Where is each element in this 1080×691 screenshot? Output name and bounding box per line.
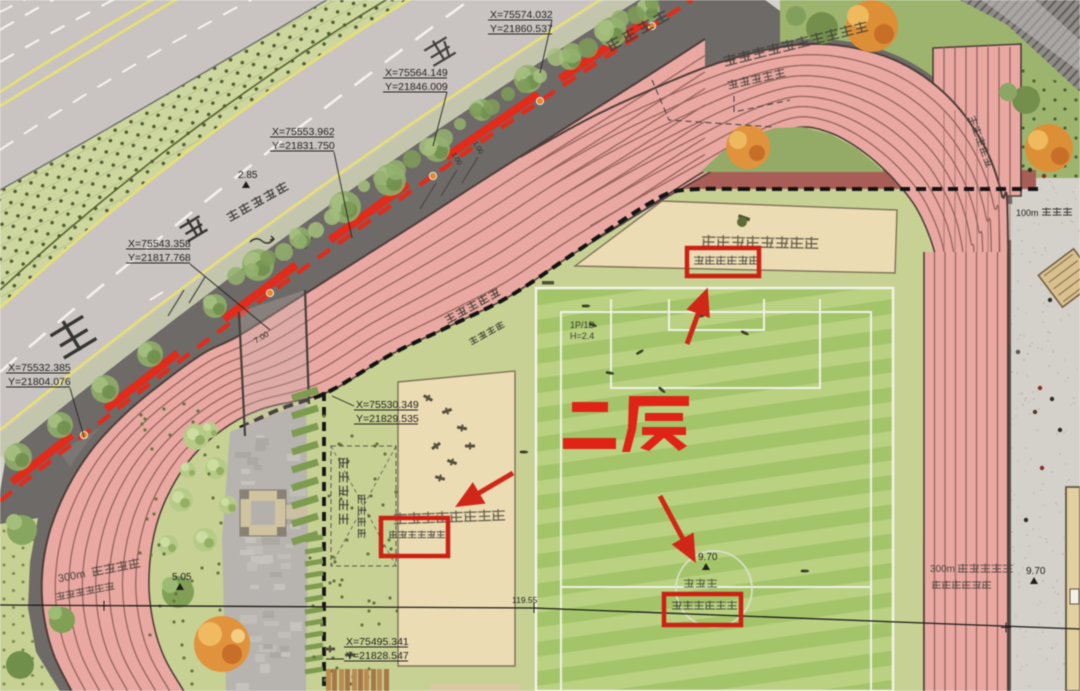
svg-text:X=75543.358: X=75543.358 [128,238,191,250]
svg-text:Y=21817.768: Y=21817.768 [128,252,191,264]
svg-text:1P/1D: 1P/1D [570,320,596,330]
svg-text:Y=21804.076: Y=21804.076 [8,376,71,388]
svg-text:Y=21828.547: Y=21828.547 [346,650,409,662]
svg-text:100m: 100m [1016,208,1039,218]
svg-text:Y=21846.009: Y=21846.009 [385,81,448,93]
svg-text:9.70: 9.70 [698,552,718,563]
svg-text:9.70: 9.70 [1026,566,1046,577]
svg-text:Y=21829.535: Y=21829.535 [356,413,419,425]
svg-text:X=75564.149: X=75564.149 [385,67,448,79]
svg-text:Y=21831.750: Y=21831.750 [272,140,335,152]
svg-text:5.05: 5.05 [172,572,192,583]
svg-text:X=75574.032: X=75574.032 [490,9,553,21]
svg-text:X=75530.349: X=75530.349 [356,399,419,411]
svg-text:X=75553.962: X=75553.962 [272,126,335,138]
svg-text:X=75532.385: X=75532.385 [8,362,71,374]
svg-text:X=75495.341: X=75495.341 [346,636,409,648]
svg-text:2.85: 2.85 [238,170,258,181]
svg-text:300m: 300m [930,564,955,575]
svg-text:Y=21860.537: Y=21860.537 [490,23,553,35]
svg-text:H=2.4: H=2.4 [570,331,594,341]
svg-text:119.55: 119.55 [512,595,538,605]
